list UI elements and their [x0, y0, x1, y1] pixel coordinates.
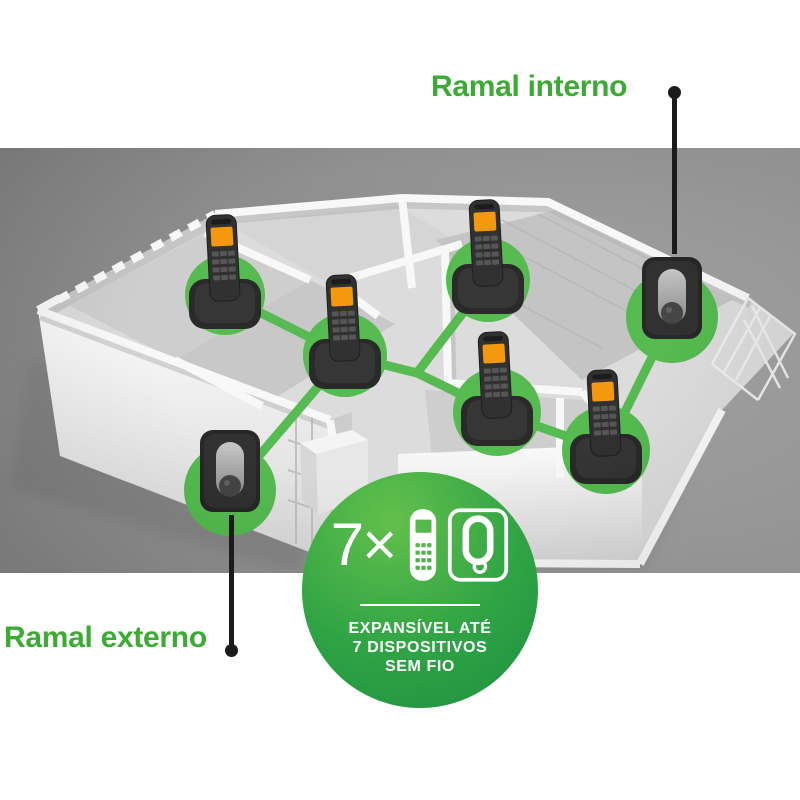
badge-icon-row: 7× [331, 504, 509, 586]
wall-unit-internal-unit [642, 257, 702, 339]
badge-caption-line: 7 DISPOSITIVOS [349, 638, 492, 657]
pointer-dot-internal [668, 86, 681, 99]
pointer-line-external [229, 515, 234, 650]
badge-caption: EXPANSÍVEL ATÉ 7 DISPOSITIVOS SEM FIO [349, 619, 492, 676]
label-ramal-externo: Ramal externo [4, 621, 207, 655]
expansion-badge: 7× [302, 472, 538, 708]
cordless-handset-icon [407, 506, 439, 584]
pointer-dot-external [225, 644, 238, 657]
label-ramal-interno: Ramal interno [431, 70, 627, 104]
badge-caption-line: SEM FIO [349, 657, 492, 676]
product-infographic: Ramal interno [0, 0, 800, 800]
base-station-icon [447, 505, 509, 585]
wall-unit-external-unit [200, 430, 260, 512]
pointer-line-internal [672, 92, 677, 254]
badge-multiplier: 7× [331, 515, 395, 575]
badge-caption-line: EXPANSÍVEL ATÉ [349, 619, 492, 638]
badge-divider [360, 604, 480, 606]
